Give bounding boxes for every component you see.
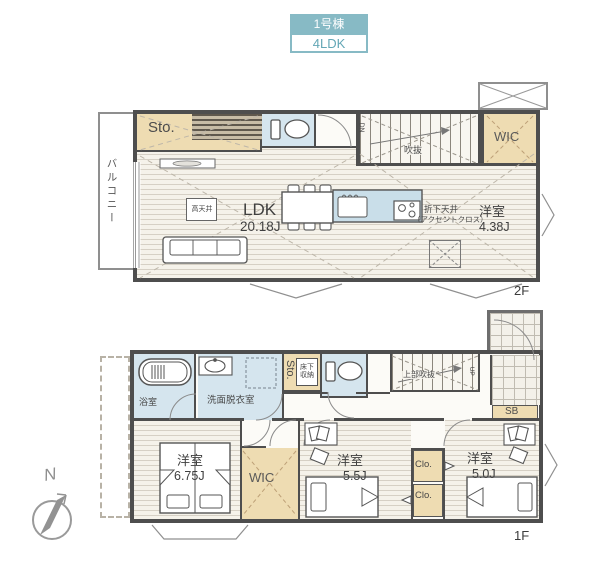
washroom-label: 洗面脱衣室 [207,396,255,406]
ldk-size-label: 20.18J [240,220,281,234]
wall-segment [334,418,444,421]
stairs-down-label: DN [358,122,365,132]
bedroom3-name-label: 洋室 [467,452,493,465]
wall-segment [298,420,300,519]
dropped-ceiling-label-2: （アクセントクロス） [413,216,488,224]
bedroom2-size-label: 5.5J [343,470,367,483]
wall-segment [356,392,390,394]
void-label-2f: 吹抜 [403,146,423,155]
floor2-label: 2F [514,284,529,297]
shoe-box-label: SB [505,407,518,417]
wall-segment [240,446,266,448]
bay-window-2f-left [250,284,342,298]
washroom-1f [198,354,282,420]
wall-segment [240,420,242,519]
building-number-badge: 1号棟 [290,14,368,33]
bedroom1-size-label: 6.75J [174,470,205,483]
layout-type-badge: 4LDK [290,33,368,53]
toilet-room-2f [262,114,316,148]
stairs-up-label: UP [467,367,474,376]
bedroom-2f-size-label: 4.38J [479,221,510,234]
ldk-name-label: LDK [243,201,276,218]
eave-outline-1f [100,356,130,518]
wall-segment [472,418,543,421]
bedroom1-name-label: 洋室 [177,454,203,467]
bedroom-2f-name-label: 洋室 [479,205,505,218]
wall-segment [443,450,445,519]
bathroom-label: 浴室 [139,398,157,407]
storage-label-2f: Sto. [148,120,175,135]
wall-segment [411,448,445,450]
wall-segment [411,450,413,519]
balcony-label: バルコニー [106,158,117,226]
wic-label-1f: WIC [249,471,274,484]
genkan-1f [490,355,540,405]
bedroom2-name-label: 洋室 [337,454,363,467]
shelf-closet-2f [192,114,262,140]
void-box-2f [478,82,548,110]
storage-label-1f: Sto. [284,360,295,380]
hall-2f [316,114,356,148]
plan-header: 1号棟 4LDK [290,14,368,53]
compass-north-label: N [43,465,58,484]
crossed-box-2f [429,240,461,268]
wall-segment [478,114,484,166]
wic-label-2f: WIC [494,130,519,143]
closet1-label: Clo. [415,460,432,470]
wall-segment [134,418,244,421]
floor1-label: 1F [514,529,529,542]
bay-window-2f-right [430,284,522,298]
side-window-1f [545,444,557,486]
closet2-label: Clo. [415,491,432,501]
bedroom3-size-label: 5.0J [472,468,496,481]
compass-icon [33,494,71,539]
bay-window-1f [152,525,248,539]
staircase-2f [360,114,478,166]
side-window-2f [542,194,554,236]
underfloor-storage-label: 床下収納 [296,358,318,386]
upper-void-label: 上部吹抜 [402,371,436,379]
floorplan-page: 1号棟 4LDK [0,0,600,570]
bathroom-1f [134,354,196,420]
high-ceiling-label: 高天井 [188,206,216,213]
dropped-ceiling-label-1: 折下天井 [424,205,458,214]
wall-segment [284,392,328,394]
